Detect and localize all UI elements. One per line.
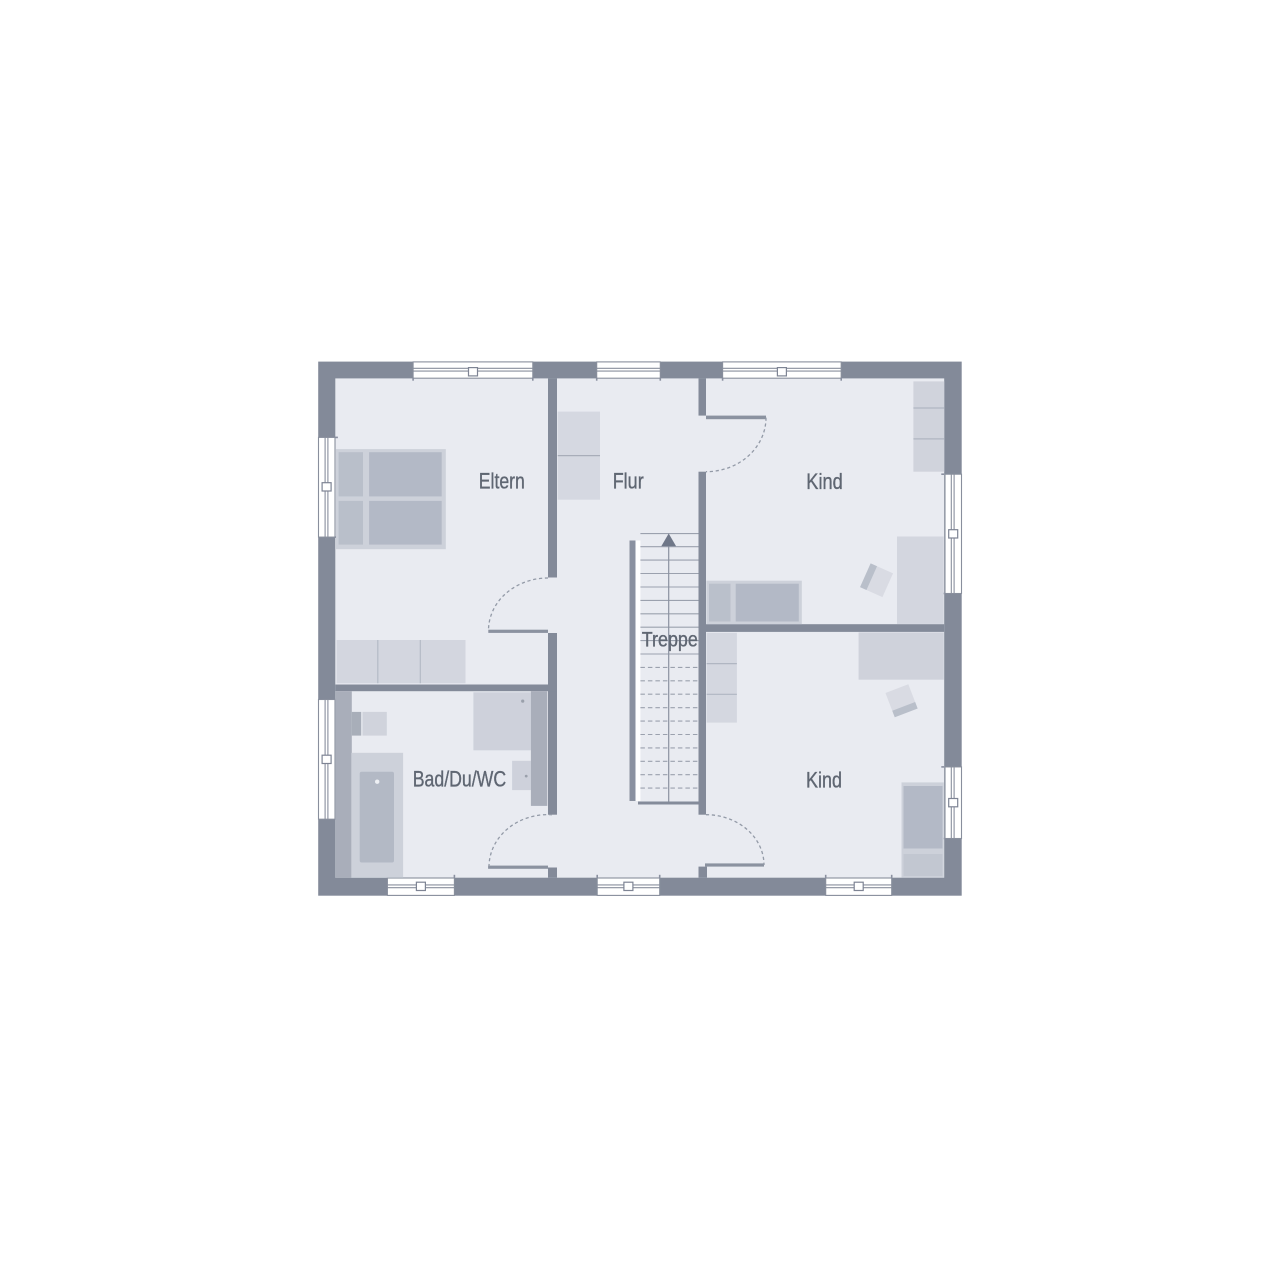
svg-text:Kind: Kind — [806, 469, 843, 494]
svg-text:Flur: Flur — [613, 468, 644, 493]
svg-text:Eltern: Eltern — [479, 468, 525, 493]
svg-text:Kind: Kind — [806, 767, 842, 792]
svg-text:Bad/Du/WC: Bad/Du/WC — [413, 767, 507, 792]
svg-text:Treppe: Treppe — [642, 629, 698, 652]
